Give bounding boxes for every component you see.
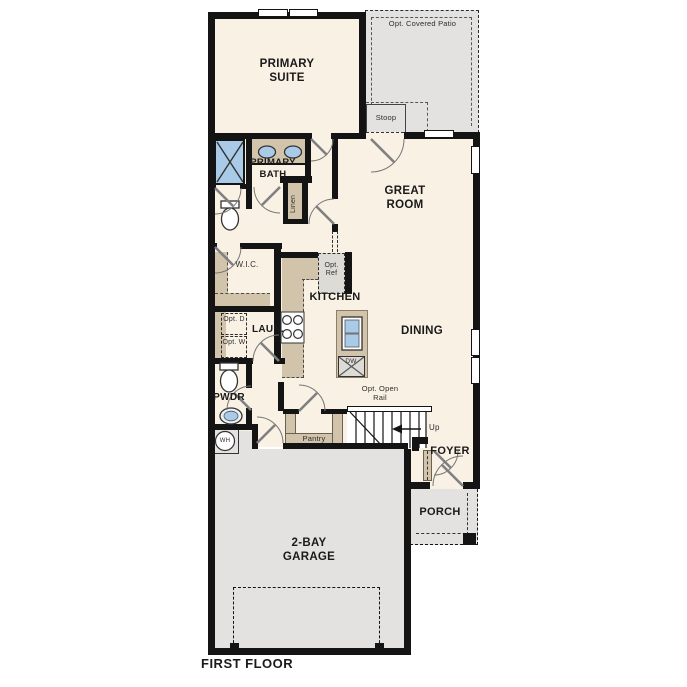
dishwasher-label: DW (338, 358, 364, 366)
plan-title: FIRST FLOOR (201, 656, 321, 672)
primary-suite-label: PRIMARY SUITE (247, 57, 327, 86)
powder-label: PWDR (209, 392, 249, 405)
powder-sink-icon (220, 408, 242, 424)
floor-plan: Opt. Covered Patio Stoop PRIMARY SUITE G… (0, 0, 687, 687)
opt-dryer-label: Opt. D (222, 316, 246, 324)
stair-up-arrow (392, 425, 421, 434)
water-heater-label: WH (215, 438, 235, 445)
pantry-label: Pantry (291, 434, 337, 443)
primary-bath-label: PRIMARY BATH (240, 157, 306, 181)
island-sink-icon (342, 317, 362, 350)
laundry-label: LAUN. (248, 324, 288, 337)
patio-label: Opt. Covered Patio (375, 19, 470, 28)
stair-treads (350, 412, 426, 448)
kitchen-label: KITCHEN (303, 291, 367, 305)
stairs-up-label: Up (429, 423, 449, 433)
porch-label: PORCH (412, 506, 468, 520)
great-room-label: GREAT ROOM (375, 184, 435, 213)
wic-label: W.I.C. (222, 260, 272, 270)
fixtures-doors-overlay (0, 0, 687, 687)
toilet-icon (221, 201, 239, 230)
dining-label: DINING (390, 324, 454, 338)
opt-open-rail-label: Opt. Open Rail (356, 384, 404, 402)
toilet-icon (220, 363, 238, 392)
opt-washer-label: Opt. W (222, 339, 246, 347)
stoop-label: Stoop (366, 113, 406, 122)
foyer-label: FOYER (427, 445, 473, 459)
opt-ref-label: Opt. Ref (319, 262, 344, 279)
linen-label: Linen (290, 187, 301, 221)
garage-label: 2-BAY GARAGE (278, 536, 340, 565)
